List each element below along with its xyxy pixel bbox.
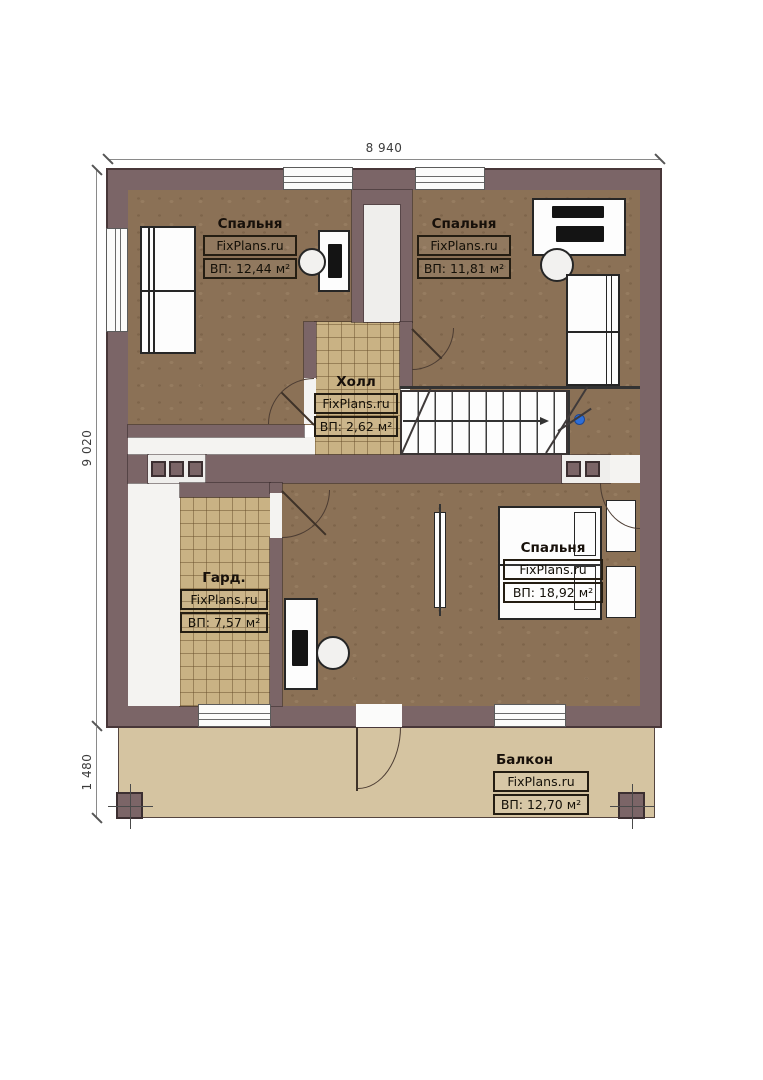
window-glass-line [416,176,484,177]
wall-hall-left [304,322,316,378]
bed-line [611,276,613,384]
window-left-wall [106,228,128,332]
wall-middle-main [206,455,562,483]
stairwell-edge-top [400,386,640,389]
wall-bedroom-tl-bottom [128,425,304,437]
chair-master [316,636,350,670]
watermark-box: FixPlans.ru [314,393,398,414]
room-label-bedroom-tl: Спальня FixPlans.ru ВП: 12,44 м² [203,216,297,279]
dimension-tick [91,164,102,175]
dimension-line-left [96,170,97,726]
chair-bedroom-tl [298,248,326,276]
area-box: ВП: 11,81 м² [417,258,511,279]
window-glass-line [284,176,352,177]
window-glass-line [199,713,270,714]
dimension-balcony-label: 1 480 [80,732,94,812]
bed-single-right [566,274,620,386]
pillar-axis-line [130,784,131,829]
area-box: ВП: 12,44 м² [203,258,297,279]
stair-direction-line [403,420,545,422]
dimension-width-label: 8 940 [344,141,424,155]
room-label-bedroom-tr: Спальня FixPlans.ru ВП: 11,81 м² [417,216,511,279]
dimension-line-balcony [96,726,97,818]
room-name: Балкон [493,752,589,768]
stair-direction-arrow [540,417,549,425]
door-opening-balcony [356,704,402,727]
vent-shaft [566,461,581,477]
room-name: Холл [314,374,398,390]
room-name: Спальня [417,216,511,232]
window-top-left [283,167,353,190]
wall-wardrobe-top [180,483,270,497]
area-box: ВП: 18,92 м² [503,582,603,603]
vent-shaft [151,461,166,477]
window-glass-line [495,719,565,720]
printer-icon [556,226,604,242]
wall-master-left [270,538,282,706]
computer-icon [328,244,342,278]
window-top-right [415,167,485,190]
corridor-left [128,483,180,706]
door-opening-master [610,455,640,483]
bed-line [606,276,608,384]
vent-shaft [585,461,600,477]
room-name: Гард. [180,570,268,586]
room-name: Спальня [203,216,297,232]
dimension-tick [91,812,102,823]
window-glass-line [199,719,270,720]
room-label-balcony: Балкон FixPlans.ru ВП: 12,70 м² [493,752,589,815]
area-box: ВП: 12,70 м² [493,794,589,815]
window-glass-line [495,713,565,714]
window-glass-line [284,182,352,183]
room-label-wardrobe: Гард. FixPlans.ru ВП: 7,57 м² [180,570,268,633]
watermark-box: FixPlans.ru [180,589,268,610]
nightstand [606,566,636,618]
window-bottom-right [494,704,566,727]
dimension-line-top [108,159,660,160]
bed-line [568,331,618,333]
loft-ladder-axis [439,504,441,616]
window-glass-line [416,182,484,183]
window-glass-line [115,229,116,331]
watermark-box: FixPlans.ru [417,235,511,256]
watermark-box: FixPlans.ru [503,559,603,580]
wall-middle-stub [128,455,148,483]
balcony-pillar-right [618,792,645,819]
area-box: ВП: 2,62 м² [314,416,398,437]
window-bottom-left [198,704,271,727]
watermark-box: FixPlans.ru [493,771,589,792]
room-name: Спальня [503,540,603,556]
room-label-hall: Холл FixPlans.ru ВП: 2,62 м² [314,374,398,437]
watermark-box: FixPlans.ru [203,235,297,256]
area-box: ВП: 7,57 м² [180,612,268,633]
pillar-axis-line [632,784,633,829]
bed-single-left [140,226,196,354]
window-glass-line [120,229,121,331]
computer-icon [292,630,308,666]
door-opening-master-left [270,493,282,538]
dimension-tick [91,720,102,731]
monitor-icon [552,206,604,218]
vent-shaft [188,461,203,477]
balcony-pillar-left [116,792,143,819]
dimension-height-label: 9 020 [80,408,94,488]
room-label-bedroom-master: Спальня FixPlans.ru ВП: 18,92 м² [503,540,603,603]
corridor-strip [128,437,315,455]
vent-shaft [169,461,184,477]
bed-line [142,290,194,292]
closet-niche [364,205,400,322]
floor-plan-page: 8 940 9 020 1 480 [0,0,763,1080]
wall-hall-right [400,322,412,388]
